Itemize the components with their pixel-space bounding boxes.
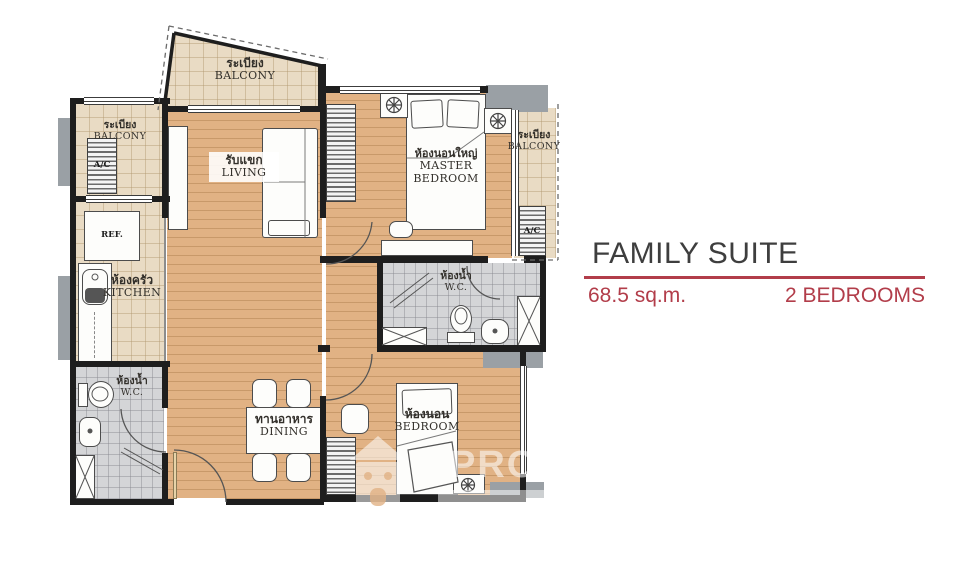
wc-master-shower [517, 296, 541, 346]
title-divider [584, 276, 925, 279]
ac-left-label: A/C [87, 160, 117, 170]
room-label-living: รับแขก LIVING [209, 152, 279, 182]
wc-master-toilet-tank [447, 332, 475, 343]
wall [162, 453, 168, 505]
wc-master-vanity [381, 327, 427, 346]
room-label-dining: ทานอาหาร DINING [248, 413, 320, 439]
dining-chair-2 [286, 379, 311, 408]
wall [224, 499, 324, 505]
wc-common-basin [79, 417, 101, 447]
wc-common-shower-tray [75, 455, 95, 499]
plan-area: 68.5 sq.m. [588, 284, 686, 308]
wall [320, 396, 326, 499]
room-label-balcony-left: ระเบียง BALCONY [76, 120, 164, 142]
dining-chair-3 [252, 453, 277, 482]
room-label-master-bedroom: ห้องนอนใหญ่ MASTER BEDROOM [399, 148, 493, 185]
tv-cabinet [168, 126, 188, 230]
window-balcony-left-top [84, 97, 154, 105]
ceiling-light-box-1 [380, 92, 408, 118]
window-master-top [340, 86, 480, 94]
wall [70, 98, 76, 505]
master-desk [381, 240, 473, 256]
room-label-balcony-top: ระเบียง BALCONY [195, 57, 295, 83]
wall [318, 345, 330, 352]
entrance-door-leaf [173, 452, 177, 499]
room-label-balcony-right: ระเบียง BALCONY [502, 130, 566, 152]
dining-chair-1 [252, 379, 277, 408]
bedroom-chair [341, 404, 369, 434]
room-label-kitchen: ห้องครัว KITCHEN [98, 274, 166, 300]
hall-floor [326, 258, 377, 352]
plan-title: FAMILY SUITE [592, 237, 799, 271]
plan-bedrooms: 2 BEDROOMS [700, 284, 925, 308]
floor-plan-page: ระเบียง BALCONY ระเบียง BALCONY ระเบียง … [0, 0, 960, 569]
wc-master-basin [481, 319, 509, 344]
bedroom-fan-box [453, 474, 485, 494]
window-bedroom-right [520, 366, 527, 474]
ac-right-label: A/C [518, 226, 546, 236]
wall [70, 499, 174, 505]
wall [384, 256, 488, 263]
room-label-wc-common: ห้องน้ำ W.C. [100, 376, 164, 398]
ledge-bedroom-top [483, 352, 543, 368]
dining-chair-4 [286, 453, 311, 482]
master-wardrobe [326, 104, 356, 202]
bedroom-wardrobe [326, 437, 356, 495]
wall [540, 256, 546, 352]
room-label-wc-master: ห้องน้ำ W.C. [428, 271, 484, 293]
window-balcony-left-kitchen [86, 195, 152, 203]
window-living-balcony [188, 105, 300, 113]
wc-master-toilet-bowl [450, 305, 472, 333]
kitchen-counter-divider [94, 312, 95, 358]
master-pillow-right [446, 99, 479, 129]
sofa-ottoman [268, 220, 310, 236]
wall [318, 64, 326, 112]
wall [70, 361, 170, 367]
room-label-bedroom: ห้องนอน BEDROOM [392, 408, 462, 434]
master-pillow-left [410, 99, 443, 129]
wc-common-toilet-tank [78, 383, 88, 407]
refrigerator-label: REF. [84, 230, 140, 240]
wall [320, 495, 526, 502]
master-desk-stool [389, 221, 413, 238]
wall [377, 262, 383, 352]
entrance-opening [174, 498, 226, 506]
